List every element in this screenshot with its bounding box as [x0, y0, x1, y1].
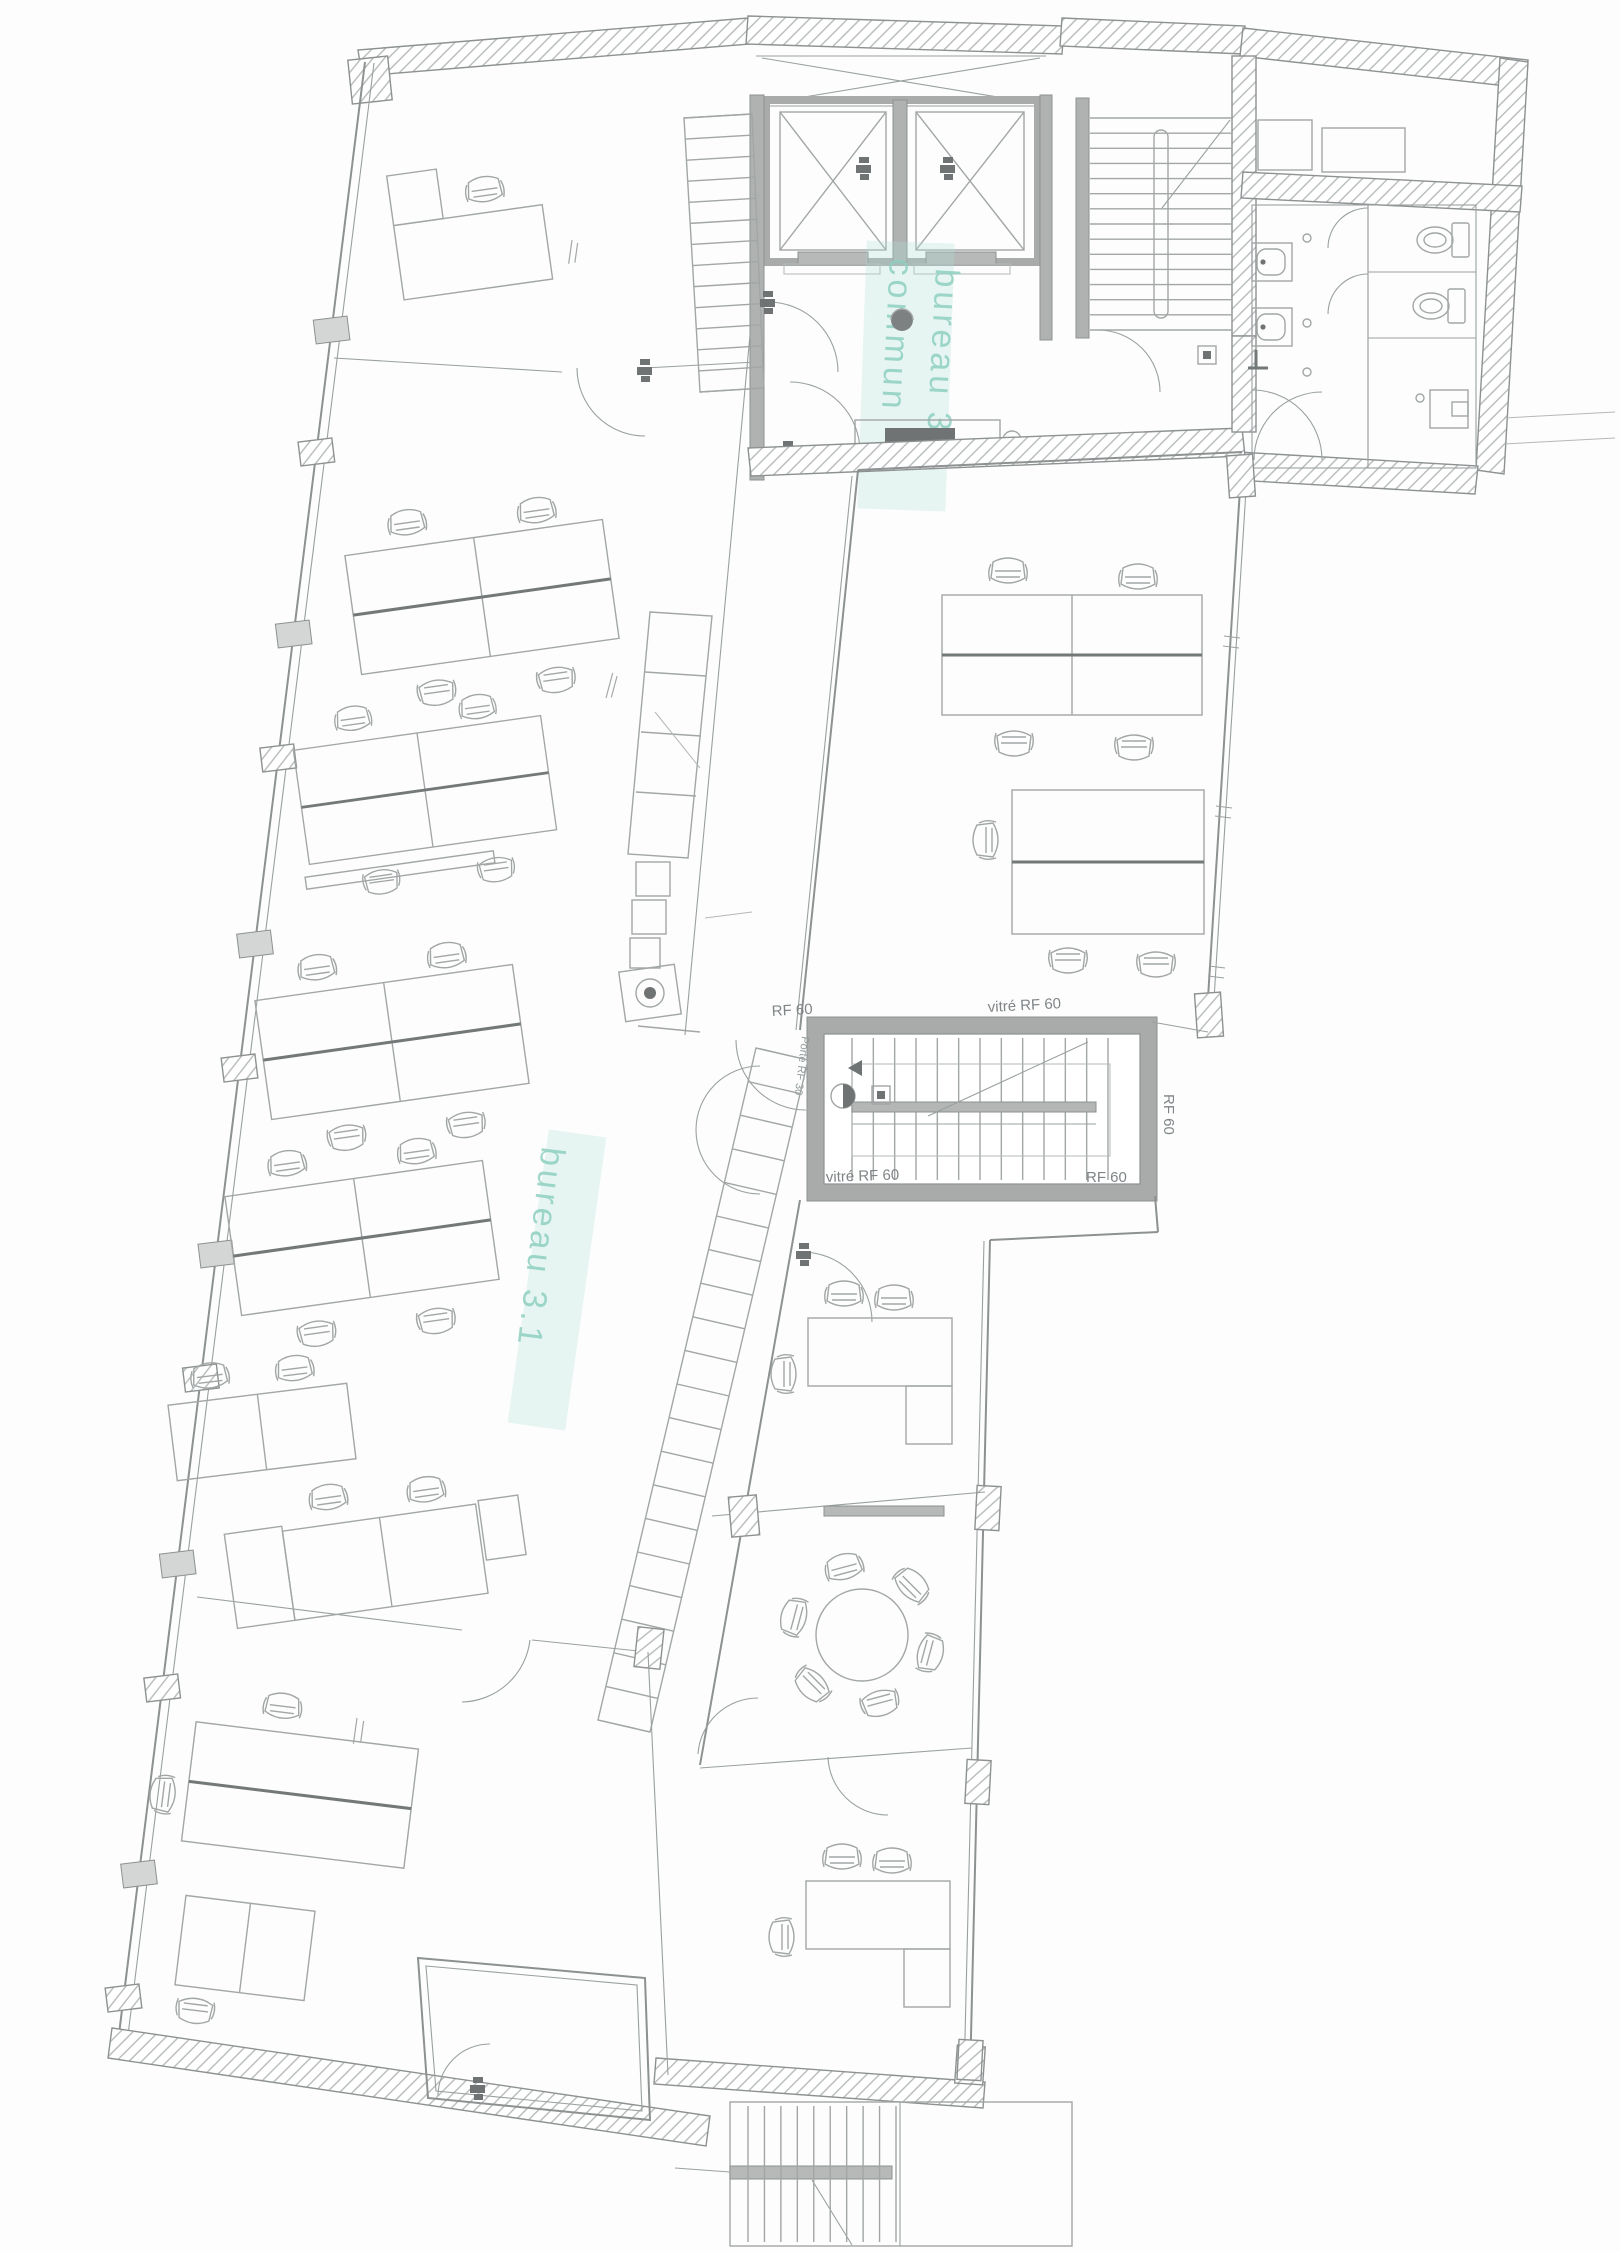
desk-cluster-right-2: [973, 790, 1204, 977]
cooktop: [619, 964, 681, 1021]
corner-desk: [387, 155, 553, 300]
label-rf60-top-left: RF 60: [771, 1001, 813, 1020]
label-rf60-bottom-right: RF 60: [1086, 1169, 1127, 1186]
label-vitre-rf60-top: vitré RF 60: [987, 995, 1061, 1016]
desk-row-e: [219, 1458, 530, 1628]
floor-plan-drawing: commun bureau 3: [0, 0, 1620, 2251]
floor-plan-page: commun bureau 3: [0, 0, 1620, 2251]
desk-cluster-right-1: [942, 558, 1202, 760]
toilet-1: [1417, 223, 1469, 257]
utility-fixture: [1430, 390, 1468, 428]
main-stair-top-right: [1076, 56, 1256, 432]
right-office: [796, 452, 1255, 1038]
toilets-wing: [1241, 120, 1615, 468]
desk-g: [171, 1895, 315, 2036]
corridor-long-stair: [598, 335, 808, 1732]
lower-right-wing: [698, 1196, 1158, 2081]
floor-box-symbol: [1198, 346, 1216, 364]
fire-stair-enclosure: RF 60 vitré RF 60 vitré RF 60 RF 60 RF 6…: [696, 995, 1208, 1201]
office-ldesk-upper: [771, 1243, 952, 1444]
desk-cluster-d: [220, 1124, 506, 1360]
office-ldesk-lower: [769, 1844, 950, 2007]
round-table: [816, 1589, 908, 1681]
lobby-commun-bureau-3: commun bureau 3: [748, 241, 1245, 512]
label-rf60-right: RF 60: [1160, 1094, 1177, 1135]
corridor-kitchen: [606, 612, 752, 1032]
bottom-left-offices: [145, 1458, 668, 2120]
lobby-label-line1: commun: [874, 258, 920, 414]
corridor-cabinets: [1258, 120, 1405, 172]
sink-1: [1252, 243, 1292, 281]
desk-cluster-a: [340, 483, 626, 719]
label-vitre-rf60-bottom: vitré RF 60: [826, 1166, 900, 1186]
sink-2: [1252, 308, 1292, 346]
desk-cluster-c: [250, 928, 536, 1164]
top-left-office: [334, 155, 756, 436]
desk-stack-f: [145, 1679, 423, 1869]
bottom-exterior-stair: [675, 2102, 1072, 2246]
meeting-room: [698, 1492, 985, 1815]
toilet-2: [1413, 289, 1465, 323]
annotation-marks: [569, 240, 578, 265]
